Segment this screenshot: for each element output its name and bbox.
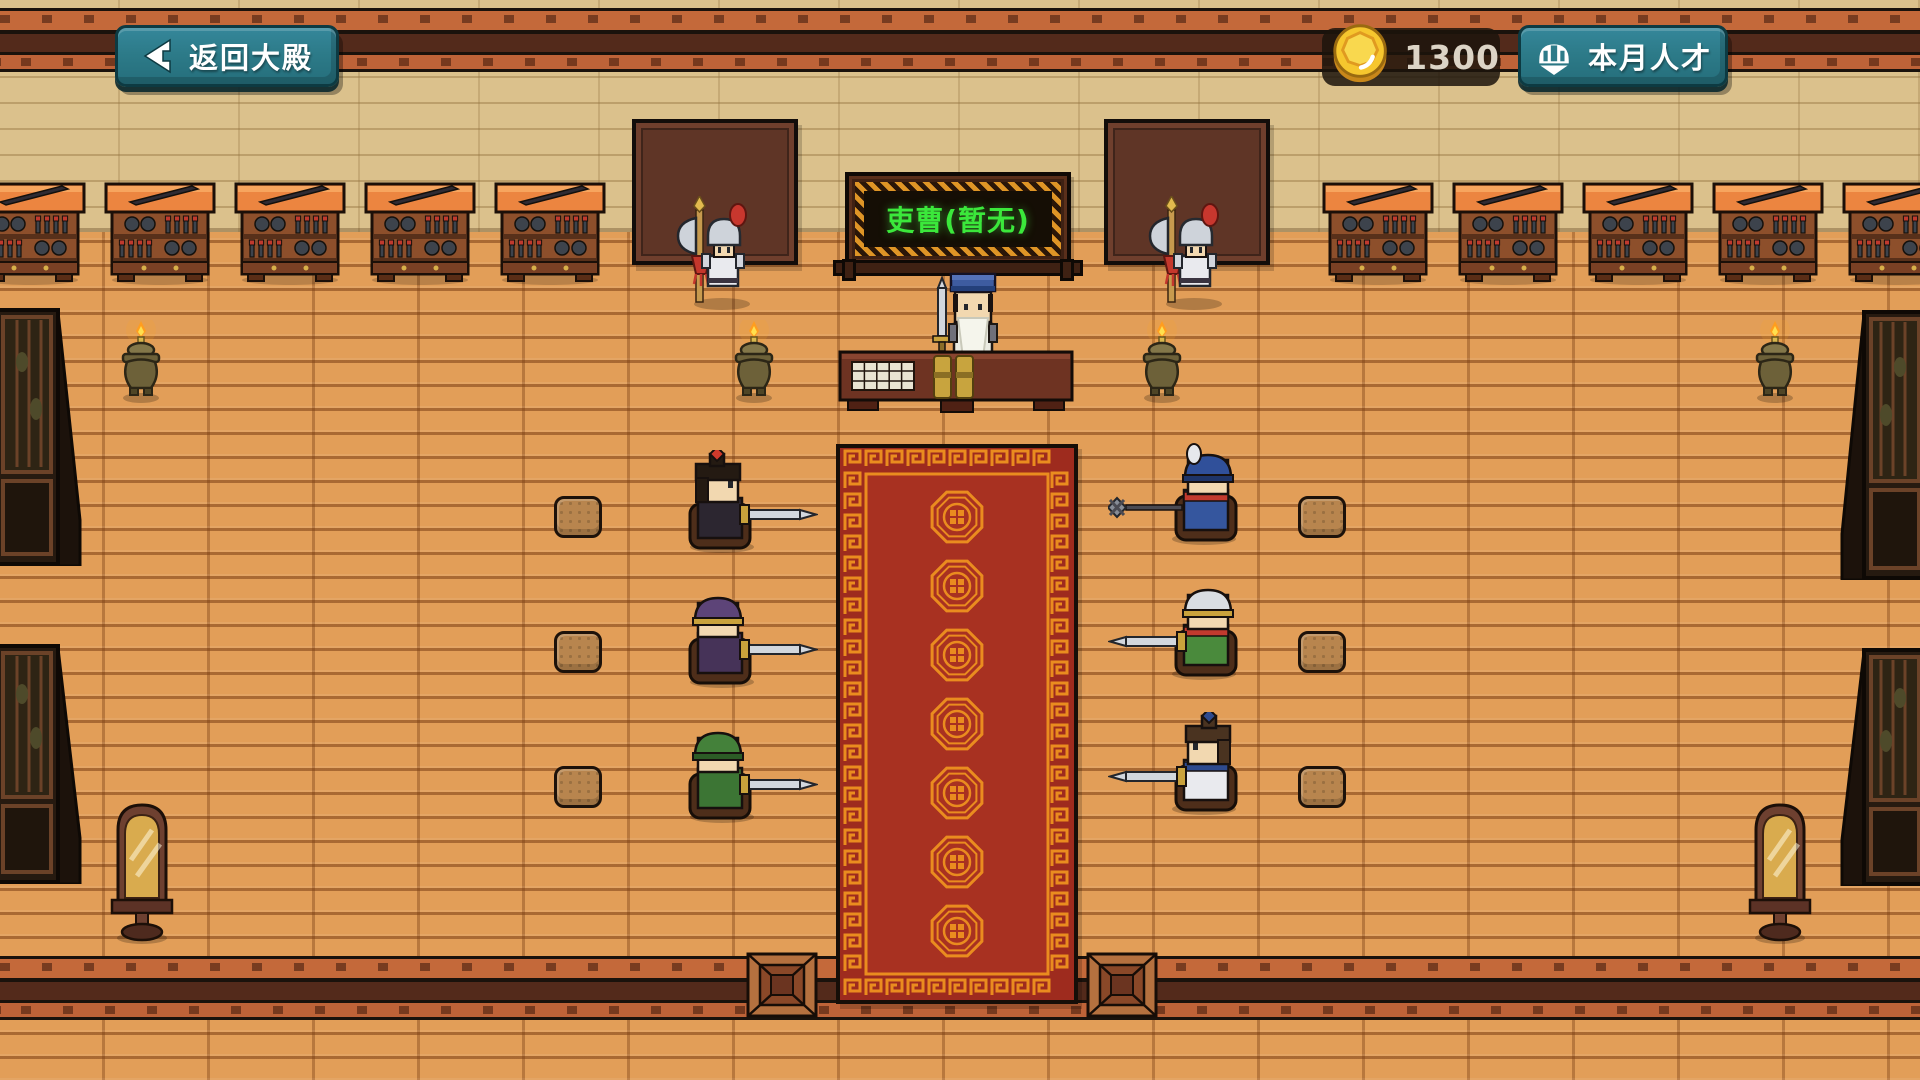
- weapon-rack: [494, 176, 606, 286]
- seated-general[interactable]: [668, 720, 818, 824]
- weapon-rack: [364, 176, 476, 286]
- floor-cushion[interactable]: [1298, 496, 1346, 538]
- floor-cushion[interactable]: [1298, 631, 1346, 673]
- floor-cushion[interactable]: [554, 496, 602, 538]
- floor-cushion[interactable]: [554, 631, 602, 673]
- lattice-screen: [1840, 648, 1920, 886]
- lattice-screen: [0, 308, 82, 566]
- red-carpet: [836, 444, 1078, 1004]
- pillar-base-mat: [746, 952, 818, 1018]
- weapon-rack: [234, 176, 346, 286]
- seated-general[interactable]: [668, 450, 818, 554]
- talent-button[interactable]: 本月人才: [1518, 25, 1728, 87]
- talent-button-label: 本月人才: [1588, 35, 1712, 77]
- helmet-icon: [1534, 36, 1574, 76]
- weapon-rack: [104, 176, 216, 286]
- game-stage: 吏曹(暂无) 返回大殿 1300 本月人才: [0, 0, 1920, 1080]
- coin-icon: [1328, 17, 1392, 87]
- weapon-rack: [1452, 176, 1564, 286]
- official-desk[interactable]: [838, 346, 1074, 416]
- pillar-base-mat: [1086, 952, 1158, 1018]
- weapon-rack: [1582, 176, 1694, 286]
- palace-guard[interactable]: [676, 196, 764, 310]
- weapon-rack: [1712, 176, 1824, 286]
- incense-burner: [1752, 320, 1798, 404]
- palace-guard[interactable]: [1148, 196, 1236, 310]
- standing-mirror: [106, 786, 178, 946]
- seated-general[interactable]: [1108, 442, 1258, 546]
- incense-burner: [118, 320, 164, 404]
- weapon-rack: [1322, 176, 1434, 286]
- lattice-screen: [1840, 310, 1920, 580]
- lattice-screen: [0, 644, 82, 884]
- seated-general[interactable]: [1108, 577, 1258, 681]
- back-button-label: 返回大殿: [189, 35, 313, 77]
- incense-burner: [731, 320, 777, 404]
- arrow-left-icon: [141, 38, 175, 74]
- coin-count: 1300: [1404, 38, 1500, 77]
- weapon-rack: [1842, 176, 1920, 286]
- coin-panel: 1300: [1322, 28, 1500, 86]
- weapon-rack: [0, 176, 86, 286]
- back-button[interactable]: 返回大殿: [115, 25, 339, 87]
- floor-cushion[interactable]: [1298, 766, 1346, 808]
- seated-general[interactable]: [1108, 712, 1258, 816]
- incense-burner: [1139, 320, 1185, 404]
- floor-cushion[interactable]: [554, 766, 602, 808]
- standing-mirror: [1744, 786, 1816, 946]
- seated-general[interactable]: [668, 585, 818, 689]
